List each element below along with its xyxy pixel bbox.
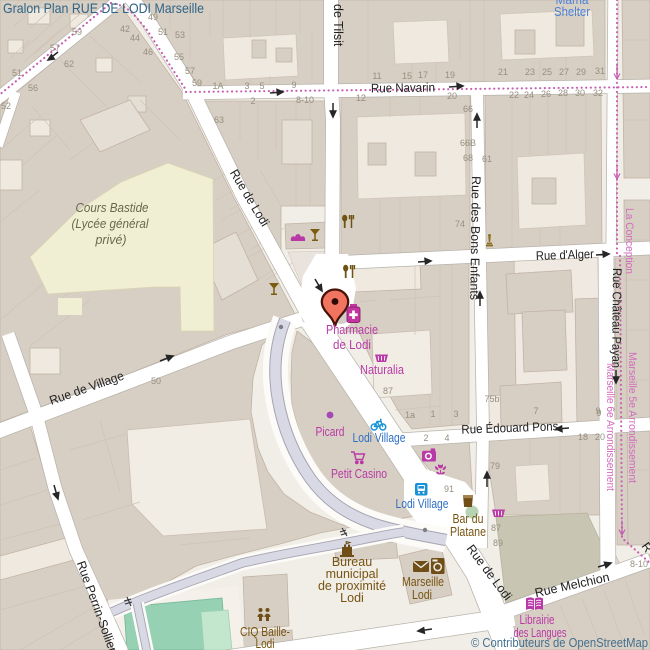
svg-text:Cours Bastide: Cours Bastide (76, 201, 149, 215)
svg-text:Rue Château Payan: Rue Château Payan (609, 268, 624, 368)
svg-text:2: 2 (423, 433, 428, 443)
svg-text:46: 46 (143, 47, 153, 57)
svg-text:24: 24 (524, 90, 534, 100)
svg-text:89: 89 (493, 538, 503, 548)
svg-text:27: 27 (559, 67, 569, 77)
svg-text:12: 12 (356, 93, 366, 103)
svg-text:1: 1 (430, 409, 435, 419)
svg-text:1a: 1a (405, 410, 415, 420)
svg-text:Pharmacie: Pharmacie (326, 323, 378, 337)
svg-text:de Lodi: de Lodi (333, 338, 371, 352)
svg-text:1A: 1A (212, 81, 223, 91)
svg-text:32: 32 (593, 88, 603, 98)
svg-text:26: 26 (541, 89, 551, 99)
svg-text:17: 17 (418, 70, 428, 80)
svg-text:Gralon Plan RUE DE LODI Marsei: Gralon Plan RUE DE LODI Marseille (3, 0, 204, 16)
svg-text:75b: 75b (484, 394, 499, 404)
svg-text:5: 5 (259, 81, 264, 91)
svg-text:3: 3 (244, 81, 249, 91)
svg-text:Lodi Village: Lodi Village (396, 496, 449, 511)
svg-text:51: 51 (158, 27, 168, 37)
svg-text:Petit Casino: Petit Casino (331, 467, 387, 481)
svg-text:Rue d'Alger: Rue d'Alger (536, 247, 594, 263)
svg-text:20: 20 (595, 432, 605, 442)
svg-text:44: 44 (130, 33, 140, 43)
svg-text:66: 66 (463, 104, 473, 114)
svg-text:50: 50 (151, 376, 161, 386)
svg-text:Naturalia: Naturalia (360, 363, 404, 377)
svg-text:Lodi Village: Lodi Village (353, 430, 406, 445)
svg-text:Lodi: Lodi (340, 591, 364, 605)
svg-text:Picard: Picard (316, 425, 345, 439)
svg-text:20: 20 (447, 91, 457, 101)
svg-text:(Lycée général: (Lycée général (72, 217, 150, 231)
svg-text:8-10: 8-10 (296, 95, 314, 105)
svg-text:31: 31 (595, 66, 605, 76)
svg-text:Lodi: Lodi (256, 637, 275, 650)
svg-text:63: 63 (214, 115, 224, 125)
svg-text:11: 11 (372, 71, 381, 81)
svg-text:Librairie: Librairie (520, 613, 555, 627)
svg-text:19: 19 (445, 70, 455, 80)
svg-text:68: 68 (463, 153, 473, 163)
svg-text:59: 59 (192, 78, 202, 88)
svg-text:62: 62 (64, 59, 74, 69)
svg-text:21: 21 (498, 67, 508, 77)
svg-text:7: 7 (533, 406, 538, 416)
svg-text:66B: 66B (460, 138, 476, 148)
svg-text:privé): privé) (95, 233, 127, 247)
svg-text:87: 87 (491, 523, 501, 533)
svg-text:Marseille: Marseille (402, 575, 444, 589)
svg-text:22: 22 (509, 90, 519, 100)
svg-text:© Contributeurs de OpenStreetM: © Contributeurs de OpenStreetMap (471, 636, 648, 650)
svg-text:La Conception: La Conception (623, 208, 635, 274)
svg-text:Bar du: Bar du (453, 512, 484, 526)
svg-text:Marseille 5e Arrondissement: Marseille 5e Arrondissement (626, 352, 638, 483)
svg-text:3: 3 (453, 409, 458, 419)
svg-text:15: 15 (402, 71, 412, 81)
svg-text:55: 55 (174, 52, 184, 62)
svg-text:79: 79 (490, 461, 500, 471)
svg-text:61: 61 (482, 154, 492, 164)
svg-text:74: 74 (455, 219, 465, 229)
svg-text:Shelter: Shelter (554, 5, 590, 19)
svg-text:42: 42 (120, 24, 130, 34)
svg-text:91: 91 (444, 484, 454, 494)
svg-text:Lodi: Lodi (412, 588, 432, 602)
svg-text:8-10: 8-10 (630, 559, 648, 569)
svg-text:Rue Navarin: Rue Navarin (371, 81, 435, 96)
svg-text:87: 87 (383, 386, 393, 396)
svg-text:de Tilsit: de Tilsit (331, 4, 345, 47)
svg-text:Rue des Bons Enfants: Rue des Bons Enfants (467, 176, 483, 300)
svg-text:56: 56 (28, 83, 38, 93)
svg-text:9: 9 (596, 408, 601, 418)
svg-text:52: 52 (1, 101, 11, 111)
svg-text:2: 2 (250, 96, 255, 106)
svg-text:23: 23 (525, 67, 535, 77)
svg-text:57: 57 (50, 43, 60, 53)
svg-text:Platane: Platane (450, 525, 486, 539)
svg-text:4: 4 (444, 433, 449, 443)
svg-text:9: 9 (291, 80, 296, 90)
svg-text:Marseille 6e Arrondissement: Marseille 6e Arrondissement (604, 363, 616, 491)
svg-text:29: 29 (576, 67, 586, 77)
svg-text:59: 59 (72, 27, 82, 37)
svg-text:18: 18 (578, 432, 588, 442)
svg-text:28: 28 (558, 88, 568, 98)
svg-text:51: 51 (12, 68, 22, 78)
svg-text:53: 53 (175, 30, 185, 40)
svg-text:25: 25 (542, 67, 552, 77)
svg-text:57: 57 (185, 66, 195, 76)
svg-text:30: 30 (575, 88, 585, 98)
